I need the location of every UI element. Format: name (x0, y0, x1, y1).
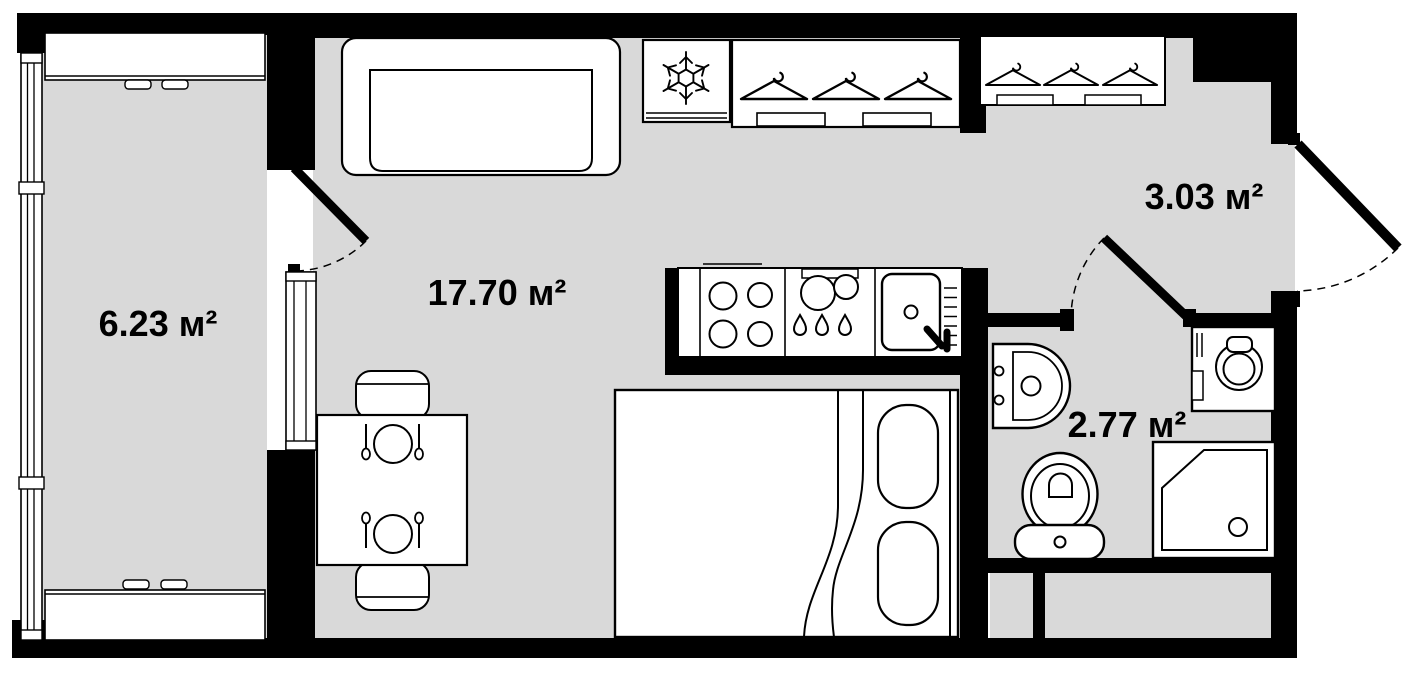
pot (834, 275, 858, 299)
wall (1033, 573, 1045, 638)
wall (267, 13, 1193, 38)
wall (17, 13, 267, 35)
living-room-area-label: 17.70 м² (428, 272, 567, 313)
chair (356, 371, 429, 419)
hallway-area-label: 3.03 м² (1145, 176, 1264, 217)
plate (374, 515, 412, 553)
burner (710, 321, 737, 348)
wall (267, 450, 315, 658)
flush-button (1055, 537, 1066, 548)
wall (988, 558, 1275, 573)
balcony-glazing-window (19, 53, 44, 640)
pillow (878, 405, 938, 508)
wall (988, 313, 1070, 327)
chair (356, 562, 429, 610)
sofa (342, 38, 620, 175)
pot (801, 276, 835, 310)
window-handle (162, 80, 188, 89)
wall (1193, 13, 1297, 82)
wall (960, 268, 988, 658)
pillow (878, 522, 938, 625)
wash-basin (993, 344, 1070, 428)
partition-window (286, 272, 316, 450)
shaft-floor-right (1045, 573, 1275, 638)
shelf (1085, 95, 1141, 105)
tap (995, 396, 1004, 405)
shaft-floor-left (990, 573, 1033, 638)
plate (374, 425, 412, 463)
wall (1185, 313, 1273, 327)
drain (905, 306, 918, 319)
burner (748, 322, 772, 346)
window-handle (161, 580, 187, 589)
drain (1229, 518, 1247, 536)
shelf (757, 113, 825, 126)
dining-table (317, 415, 467, 565)
window-handle (125, 80, 151, 89)
drain (1022, 377, 1041, 396)
floor-plan: 6.23 м² 17.70 м² 3.03 м² 2.77 м² (0, 0, 1416, 676)
bed (615, 390, 958, 637)
door-jamb (1288, 133, 1300, 145)
hallway-closet (980, 36, 1165, 105)
washing-machine (1192, 327, 1275, 411)
balcony-top-window (45, 33, 265, 89)
wall (12, 638, 1297, 658)
kitchen-counter (665, 264, 962, 375)
door-jamb (1283, 291, 1300, 307)
bathroom-area-label: 2.77 м² (1068, 404, 1187, 445)
tap (995, 367, 1004, 376)
drum-inner (1224, 354, 1255, 385)
wall (267, 13, 315, 170)
burner (710, 283, 737, 310)
burner (748, 283, 772, 307)
door-jamb (1060, 309, 1074, 331)
balcony-area-label: 6.23 м² (99, 303, 218, 344)
window-handle (123, 580, 149, 589)
shelf (997, 95, 1053, 105)
shower (1153, 442, 1275, 558)
wardrobe (732, 40, 960, 127)
fridge (643, 40, 730, 122)
shelf (863, 113, 931, 126)
